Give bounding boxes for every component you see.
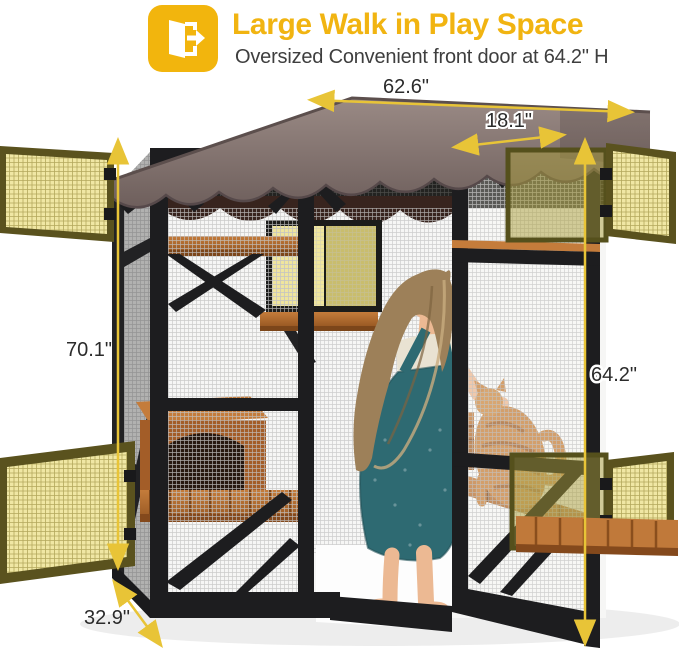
dim-label-door-height: 64.2" <box>591 364 637 386</box>
outdoor-perch <box>516 516 678 556</box>
open-panel-bottom-left <box>0 441 136 584</box>
dim-label-door-width: 18.1" <box>486 110 532 132</box>
dim-label-depth: 32.9" <box>84 607 130 629</box>
dim-label-top-width: 62.6" <box>383 76 429 98</box>
open-panel-top-right <box>508 143 676 244</box>
product-infographic: Large Walk in Play Space Oversized Conve… <box>0 0 679 654</box>
dim-label-left-height: 70.1" <box>66 339 112 361</box>
catio-illustration: 62.6" 18.1" 70.1" 64.2" 32.9" <box>0 0 679 654</box>
open-panel-top-left <box>0 146 116 242</box>
